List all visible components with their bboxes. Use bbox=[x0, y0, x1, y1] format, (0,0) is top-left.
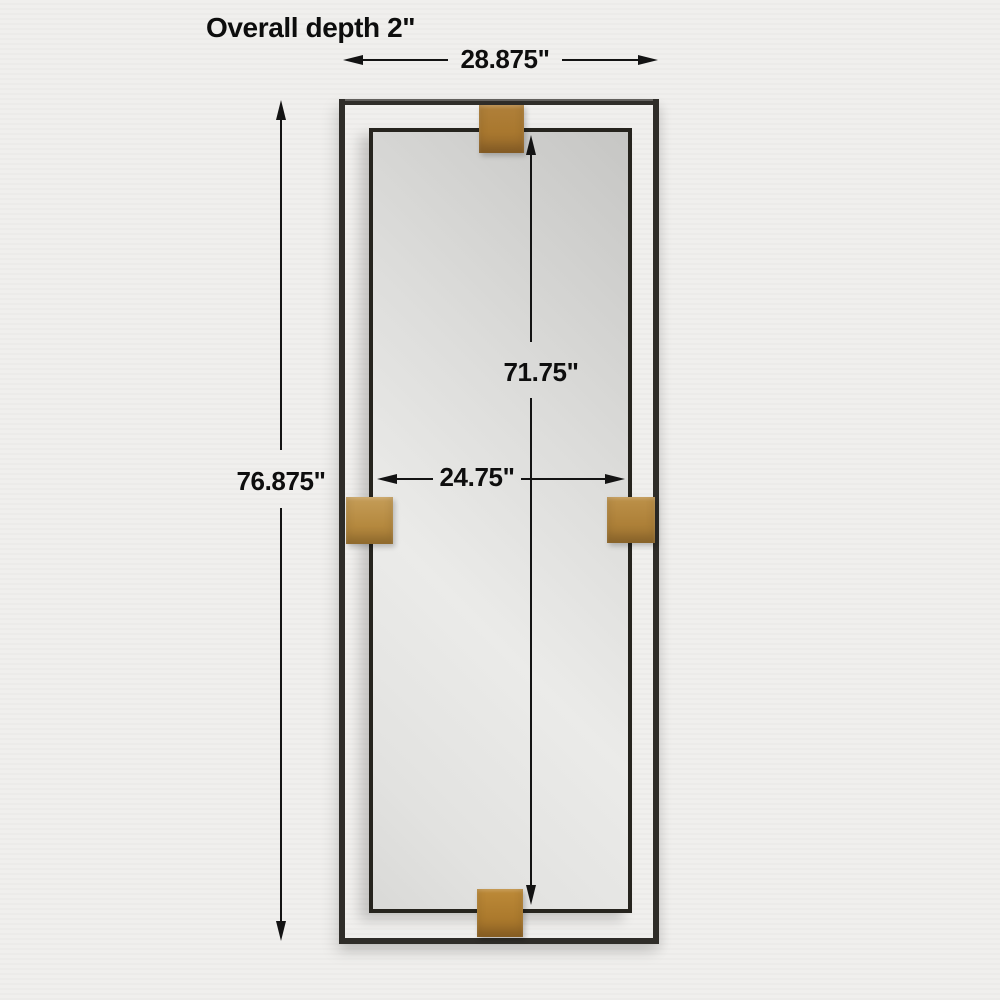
dimension-line bbox=[562, 59, 638, 61]
arrow-up-icon bbox=[276, 100, 286, 120]
overall-height-label: 76.875" bbox=[222, 466, 340, 497]
overall-width-label: 28.875" bbox=[448, 44, 562, 75]
arrow-down-icon bbox=[526, 885, 536, 905]
dimension-line bbox=[395, 478, 433, 480]
dimension-line bbox=[361, 59, 448, 61]
brass-clip-right bbox=[607, 497, 655, 543]
overall-depth-label: Overall depth 2" bbox=[206, 12, 415, 44]
dimension-line bbox=[280, 508, 282, 922]
arrow-up-icon bbox=[526, 135, 536, 155]
arrow-right-icon bbox=[605, 474, 625, 484]
arrow-left-icon bbox=[343, 55, 363, 65]
mirror-height-label: 71.75" bbox=[497, 357, 585, 388]
brass-clip-top bbox=[479, 105, 524, 153]
arrow-down-icon bbox=[276, 921, 286, 941]
dimension-line bbox=[530, 398, 532, 886]
dimension-line bbox=[530, 153, 532, 342]
arrow-left-icon bbox=[377, 474, 397, 484]
mirror-glass bbox=[369, 128, 632, 913]
brass-clip-left bbox=[346, 497, 393, 544]
dimension-diagram: Overall depth 2" 28.875" 76.875" 71.75" … bbox=[0, 0, 1000, 1000]
mirror-width-label: 24.75" bbox=[433, 462, 521, 493]
arrow-right-icon bbox=[638, 55, 658, 65]
dimension-line bbox=[521, 478, 605, 480]
dimension-line bbox=[280, 118, 282, 450]
brass-clip-bottom bbox=[477, 889, 523, 937]
